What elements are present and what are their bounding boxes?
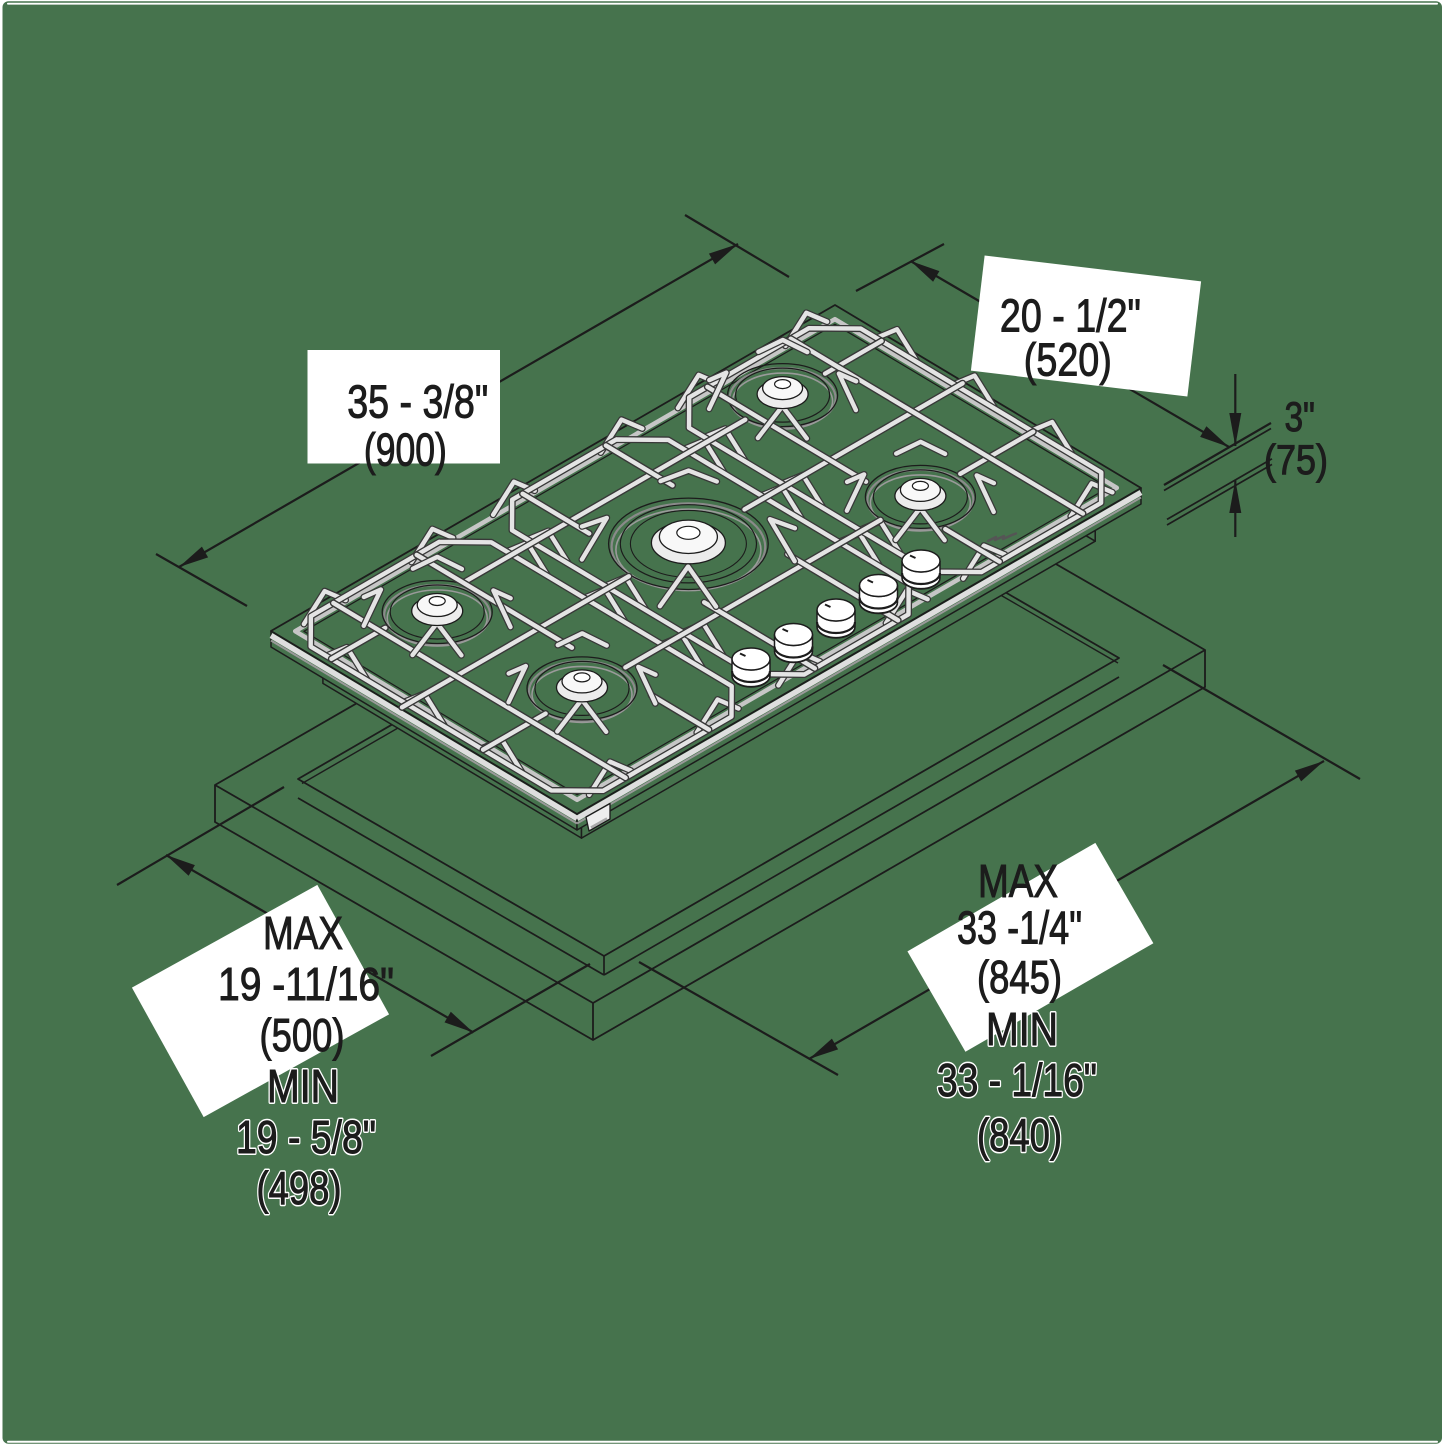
svg-text:(500): (500) — [260, 1009, 345, 1061]
svg-text:(845): (845) — [977, 951, 1062, 1003]
svg-text:19 - 5/8": 19 - 5/8" — [236, 1111, 376, 1163]
svg-text:MIN: MIN — [986, 1003, 1058, 1055]
svg-text:35 - 3/8": 35 - 3/8" — [347, 376, 488, 428]
svg-text:(498): (498) — [257, 1162, 342, 1214]
svg-text:33 -1/4": 33 -1/4" — [957, 902, 1082, 954]
svg-text:MIN: MIN — [267, 1060, 339, 1112]
svg-text:19 -11/16": 19 -11/16" — [218, 958, 394, 1010]
svg-text:33 - 1/16": 33 - 1/16" — [937, 1054, 1097, 1106]
svg-text:(520): (520) — [1024, 333, 1112, 385]
svg-text:MAX: MAX — [978, 855, 1058, 907]
svg-text:(75): (75) — [1264, 436, 1328, 483]
svg-text:(900): (900) — [364, 423, 447, 475]
svg-text:(840): (840) — [977, 1109, 1062, 1161]
svg-text:MAX: MAX — [263, 907, 343, 959]
svg-text:3": 3" — [1284, 393, 1315, 440]
